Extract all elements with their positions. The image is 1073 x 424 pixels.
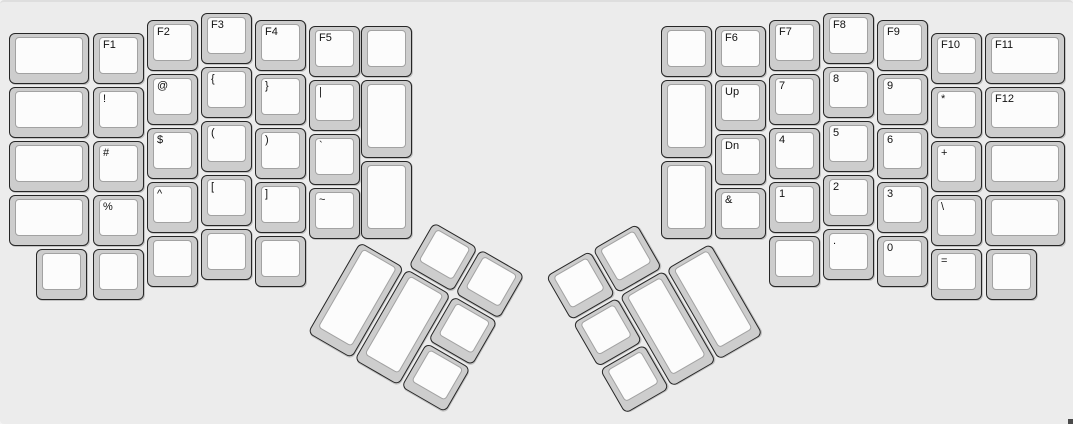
key-legend: 8 (833, 73, 839, 86)
keytop (465, 256, 517, 308)
key-legend: @ (157, 80, 168, 93)
key-legend: ] (265, 188, 268, 201)
key-blank[interactable] (147, 236, 198, 287)
resize-handle[interactable] (1068, 419, 1073, 424)
keytop: F6 (721, 30, 760, 67)
keytop (667, 165, 706, 229)
key-f9[interactable]: F9 (877, 20, 928, 71)
key-legend: Up (725, 86, 739, 99)
keytop: ] (261, 186, 300, 223)
keytop: 6 (883, 132, 922, 169)
keytop: % (99, 199, 138, 236)
keytop: F7 (775, 24, 814, 61)
keytop (607, 351, 659, 403)
key-f3[interactable]: F3 (201, 13, 252, 64)
key-blank[interactable] (661, 26, 712, 77)
keytop: 7 (775, 78, 814, 115)
keytop: { (207, 71, 246, 108)
key-hash[interactable]: # (93, 141, 144, 192)
key-1[interactable]: 1 (769, 182, 820, 233)
key-f10[interactable]: F10 (931, 33, 982, 84)
keytop (418, 229, 470, 281)
key-legend: * (941, 93, 945, 106)
key-blank[interactable] (93, 249, 144, 300)
key-up[interactable]: Up (715, 80, 766, 131)
keytop (99, 253, 138, 290)
key-legend: \ (941, 201, 944, 214)
key-legend: 0 (887, 242, 893, 255)
keytop: ! (99, 91, 138, 128)
keytop: ` (315, 138, 354, 175)
keytop: } (261, 78, 300, 115)
keytop: F5 (315, 30, 354, 67)
keytop: 8 (829, 71, 868, 108)
key-legend: = (941, 255, 947, 268)
keytop (580, 304, 632, 356)
keyboard-layout-canvas: F1!#%F2@$^F3{([F4})]F5|`~F6UpDn&F7741F88… (0, 0, 1073, 424)
keytop (15, 199, 83, 236)
keytop (411, 349, 463, 401)
key-legend: F4 (265, 26, 278, 39)
key-lbrace[interactable]: { (201, 67, 252, 118)
keytop (367, 165, 406, 229)
key-at[interactable]: @ (147, 74, 198, 125)
keytop: F9 (883, 24, 922, 61)
key-f2[interactable]: F2 (147, 20, 198, 71)
key-exclam[interactable]: ! (93, 87, 144, 138)
keytop: 1 (775, 186, 814, 223)
key-legend: ` (319, 140, 323, 153)
keytop: F10 (937, 37, 976, 74)
keytop: \ (937, 199, 976, 236)
key-8[interactable]: 8 (823, 67, 874, 118)
key-f4[interactable]: F4 (255, 20, 306, 71)
key-legend: ^ (157, 188, 162, 201)
key-lparen[interactable]: ( (201, 121, 252, 172)
keytop: $ (153, 132, 192, 169)
key-legend: F10 (941, 39, 960, 52)
keytop: & (721, 192, 760, 229)
key-9[interactable]: 9 (877, 74, 928, 125)
key-blank[interactable] (9, 195, 89, 246)
keytop (42, 253, 81, 290)
key-asterisk[interactable]: * (931, 87, 982, 138)
key-legend: F5 (319, 32, 332, 45)
keytop: | (315, 84, 354, 121)
keytop: . (829, 233, 868, 270)
keytop: @ (153, 78, 192, 115)
keytop (261, 240, 300, 277)
key-7[interactable]: 7 (769, 74, 820, 125)
key-blank[interactable] (201, 229, 252, 280)
keytop: F11 (991, 37, 1059, 74)
key-legend: % (103, 201, 113, 214)
keytop: * (937, 91, 976, 128)
keytop: ( (207, 125, 246, 162)
key-equals[interactable]: = (931, 249, 982, 300)
key-legend: | (319, 86, 322, 99)
key-blank[interactable] (36, 249, 87, 300)
key-dn[interactable]: Dn (715, 134, 766, 185)
key-f1[interactable]: F1 (93, 33, 144, 84)
keytop (367, 30, 406, 67)
key-f8[interactable]: F8 (823, 13, 874, 64)
key-rparen[interactable]: ) (255, 128, 306, 179)
keytop: 5 (829, 125, 868, 162)
key-rbracket[interactable]: ] (255, 182, 306, 233)
key-legend: Dn (725, 140, 739, 153)
key-f6[interactable]: F6 (715, 26, 766, 77)
keytop (367, 84, 406, 148)
keytop (15, 145, 83, 182)
key-legend: 2 (833, 181, 839, 194)
keytop (991, 145, 1059, 182)
key-blank[interactable] (361, 26, 412, 77)
key-legend: [ (211, 181, 214, 194)
key-backslash[interactable]: \ (931, 195, 982, 246)
keytop: # (99, 145, 138, 182)
key-3[interactable]: 3 (877, 182, 928, 233)
key-legend: F7 (779, 26, 792, 39)
key-legend: F11 (995, 39, 1013, 52)
key-legend: + (941, 147, 947, 160)
keytop: F12 (991, 91, 1059, 128)
key-legend: $ (157, 134, 163, 147)
keytop: Dn (721, 138, 760, 175)
key-legend: F12 (995, 93, 1014, 106)
keytop: F2 (153, 24, 192, 61)
key-4[interactable]: 4 (769, 128, 820, 179)
key-legend: # (103, 147, 109, 160)
keytop: [ (207, 179, 246, 216)
key-plus[interactable]: + (931, 141, 982, 192)
key-0[interactable]: 0 (877, 236, 928, 287)
keytop: F1 (99, 37, 138, 74)
keytop: 0 (883, 240, 922, 277)
key-5[interactable]: 5 (823, 121, 874, 172)
keytop: 2 (829, 179, 868, 216)
key-6[interactable]: 6 (877, 128, 928, 179)
key-legend: F9 (887, 26, 900, 39)
key-f11[interactable]: F11 (985, 33, 1065, 84)
keytop: F4 (261, 24, 300, 61)
key-backtick[interactable]: ` (309, 134, 360, 185)
key-ampersand[interactable]: & (715, 188, 766, 239)
key-blank[interactable] (661, 80, 712, 158)
keytop (207, 233, 246, 270)
keytop (153, 240, 192, 277)
key-legend: 9 (887, 80, 893, 93)
key-dollar[interactable]: $ (147, 128, 198, 179)
keytop (438, 302, 490, 354)
key-blank[interactable] (769, 236, 820, 287)
key-lbracket[interactable]: [ (201, 175, 252, 226)
key-legend: ( (211, 127, 215, 140)
key-tilde[interactable]: ~ (309, 188, 360, 239)
keytop: = (937, 253, 976, 290)
keytop (553, 257, 605, 309)
key-blank[interactable] (985, 141, 1065, 192)
key-blank[interactable] (361, 80, 412, 158)
keytop (667, 84, 706, 148)
keytop (15, 37, 83, 74)
key-legend: 5 (833, 127, 839, 140)
keytop (667, 30, 706, 67)
key-legend: ! (103, 93, 106, 106)
key-legend: . (833, 235, 836, 248)
key-blank[interactable] (661, 161, 712, 239)
keytop (992, 253, 1031, 290)
keytop: ~ (315, 192, 354, 229)
key-percent[interactable]: % (93, 195, 144, 246)
key-f12[interactable]: F12 (985, 87, 1065, 138)
key-legend: 6 (887, 134, 893, 147)
key-legend: ) (265, 134, 269, 147)
key-legend: 7 (779, 80, 785, 93)
key-blank[interactable] (986, 249, 1037, 300)
key-f7[interactable]: F7 (769, 20, 820, 71)
key-rbrace[interactable]: } (255, 74, 306, 125)
keytop: + (937, 145, 976, 182)
key-blank[interactable] (985, 195, 1065, 246)
keytop: ^ (153, 186, 192, 223)
key-blank[interactable] (361, 161, 412, 239)
key-caret[interactable]: ^ (147, 182, 198, 233)
key-legend: F1 (103, 39, 116, 52)
key-legend: F2 (157, 26, 170, 39)
keytop (775, 240, 814, 277)
key-2[interactable]: 2 (823, 175, 874, 226)
keytop (15, 91, 83, 128)
key-legend: 1 (779, 188, 785, 201)
keytop (600, 230, 652, 282)
key-blank[interactable] (9, 141, 89, 192)
keytop: 3 (883, 186, 922, 223)
key-legend: F3 (211, 19, 224, 32)
key-legend: ~ (319, 194, 325, 207)
keytop: F8 (829, 17, 868, 54)
key-legend: 3 (887, 188, 893, 201)
keytop: ) (261, 132, 300, 169)
keytop: F3 (207, 17, 246, 54)
key-legend: { (211, 73, 215, 86)
keytop: 4 (775, 132, 814, 169)
key-legend: F6 (725, 32, 738, 45)
key-legend: & (725, 194, 732, 207)
keytop: Up (721, 84, 760, 121)
key-blank[interactable] (9, 87, 89, 138)
key-blank[interactable] (255, 236, 306, 287)
keytop (991, 199, 1059, 236)
key-f5[interactable]: F5 (309, 26, 360, 77)
key-period[interactable]: . (823, 229, 874, 280)
key-legend: } (265, 80, 269, 93)
key-legend: 4 (779, 134, 785, 147)
key-blank[interactable] (9, 33, 89, 84)
key-legend: F8 (833, 19, 846, 32)
key-pipe[interactable]: | (309, 80, 360, 131)
keytop: 9 (883, 78, 922, 115)
